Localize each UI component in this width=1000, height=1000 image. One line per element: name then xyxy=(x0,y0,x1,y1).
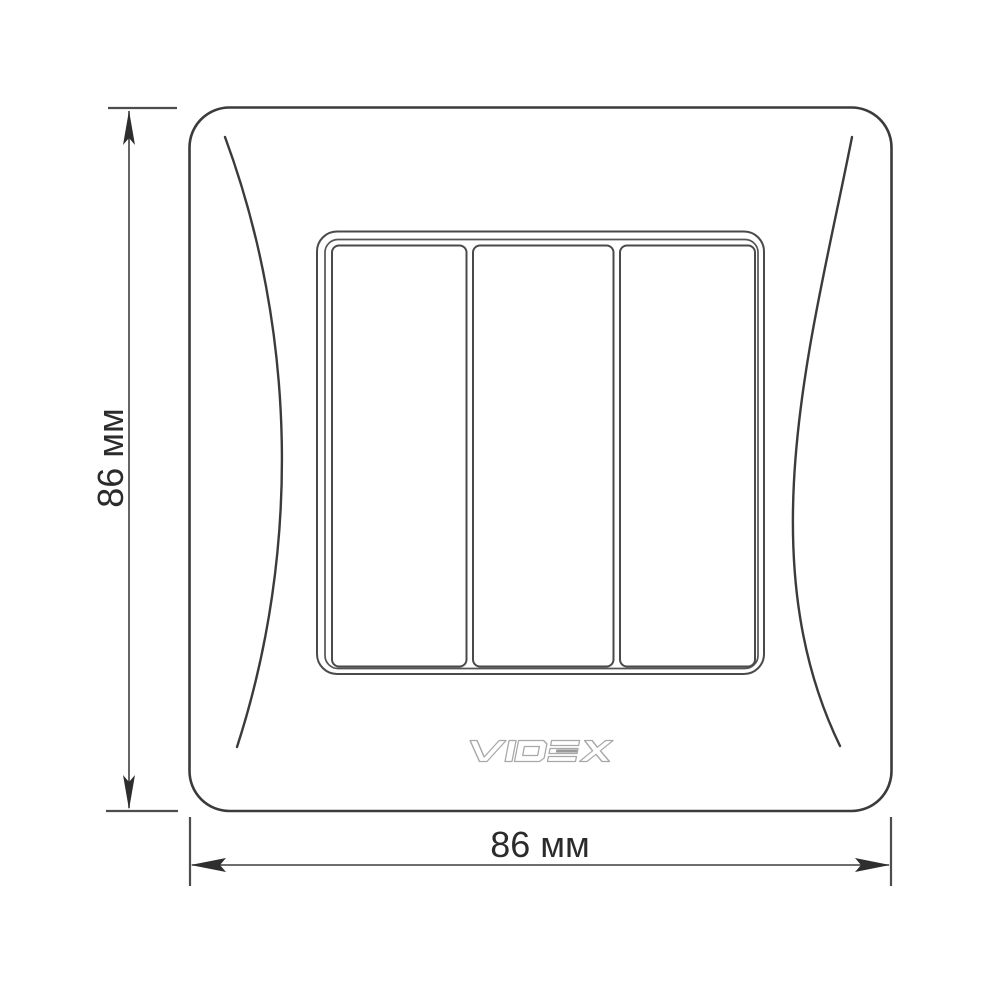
svg-text:86 мм: 86 мм xyxy=(490,824,590,865)
svg-text:86 мм: 86 мм xyxy=(90,408,131,508)
